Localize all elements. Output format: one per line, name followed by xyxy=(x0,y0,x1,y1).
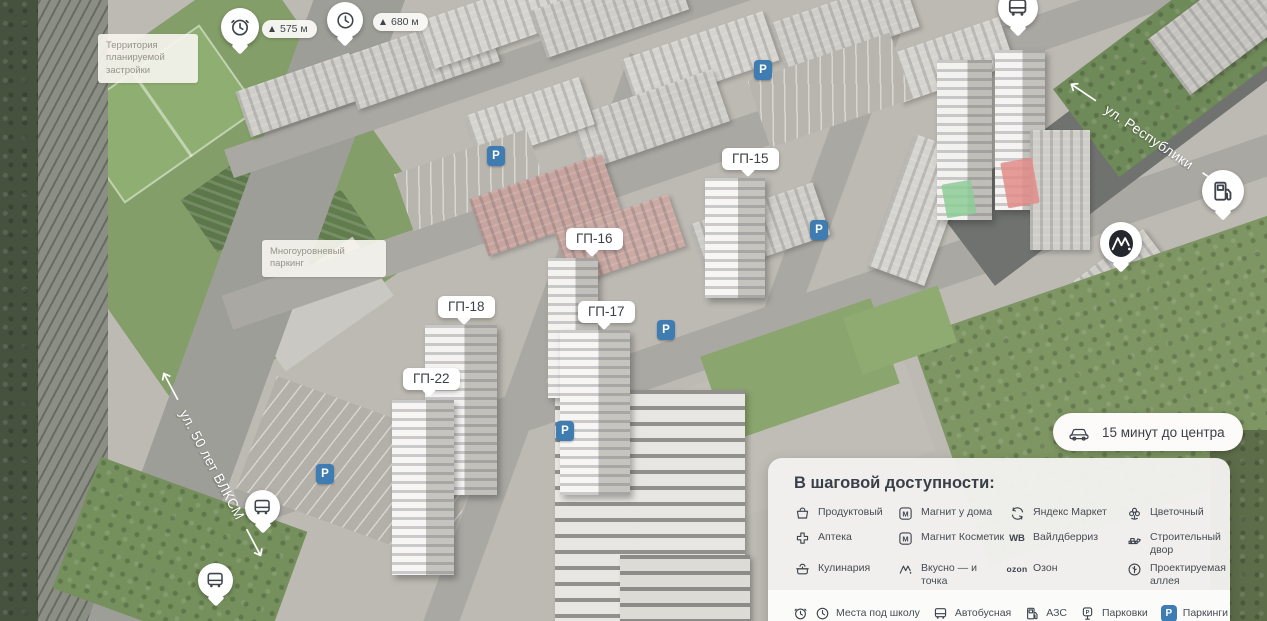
building-label[interactable]: ГП-16 xyxy=(566,228,623,250)
bus-icon xyxy=(205,570,225,590)
bus-icon xyxy=(933,605,949,621)
bus-icon xyxy=(1006,0,1029,20)
amenity-label: Вайлдберриз xyxy=(1033,529,1098,544)
parking-mark[interactable]: P xyxy=(556,421,574,441)
bus-stop-pin[interactable] xyxy=(198,563,233,598)
alley-icon xyxy=(1126,561,1142,577)
amenity-item: Строительный двор xyxy=(1126,529,1230,556)
drive-time-badge: 15 минут до центра xyxy=(1053,413,1243,451)
flower-icon xyxy=(1126,505,1142,521)
map-decor-block xyxy=(1030,130,1090,250)
amenity-label: Проектируемая аллея xyxy=(1150,560,1226,587)
yandex-market-icon xyxy=(1009,505,1025,521)
walk-direction-icon xyxy=(269,26,275,32)
amenity-label: Озон xyxy=(1033,560,1058,575)
amenity-item: Проектируемая аллея xyxy=(1126,560,1230,587)
basket-icon xyxy=(794,505,810,521)
distance-value: 680 м xyxy=(391,16,419,28)
pharmacy-cross-icon xyxy=(794,530,810,546)
svg-text:М: М xyxy=(902,534,908,543)
parking-mark[interactable]: P xyxy=(754,60,772,80)
parking-mark[interactable]: P xyxy=(810,220,828,240)
map-decor-block xyxy=(560,330,630,495)
amenity-label: Строительный двор xyxy=(1150,529,1226,556)
building-label[interactable]: ГП-15 xyxy=(722,148,779,170)
footer-item: Автобусная xyxy=(933,605,1011,621)
footer-item: АЗС xyxy=(1024,605,1067,621)
panel-title: В шаговой доступности: xyxy=(794,474,1230,493)
distance-value: 575 м xyxy=(280,23,308,35)
vkusno-logo-icon xyxy=(1109,231,1133,255)
amenity-item: ozonОзон xyxy=(1009,560,1126,587)
parking-blue-icon: P xyxy=(1161,605,1177,621)
masterplan-map-view[interactable]: Территория планируемой застройки Многоур… xyxy=(0,0,1267,621)
map-decor-block xyxy=(392,400,454,575)
fuel-icon xyxy=(1024,605,1040,621)
amenity-label: Магнит у дома xyxy=(921,504,992,519)
amenity-item: Яндекс Маркет xyxy=(1009,504,1126,525)
vkusno-icon xyxy=(897,561,913,577)
school-pin[interactable] xyxy=(221,8,259,46)
map-decor-block xyxy=(705,178,765,298)
amenity-item: Продуктовый xyxy=(794,504,897,525)
parking-mark[interactable]: P xyxy=(487,146,505,166)
building-label[interactable]: ГП-22 xyxy=(403,368,460,390)
school-clock-icon xyxy=(229,16,251,38)
bus-stop-pin[interactable] xyxy=(245,490,280,525)
area-label-planned-development: Территория планируемой застройки xyxy=(98,34,198,83)
amenity-label: Магнит Косметик xyxy=(921,529,1004,544)
footer-item: Места под школу xyxy=(792,605,920,621)
area-label-multilevel-parking: Многоуровневый паркинг xyxy=(262,240,386,277)
footer-item: PПаркинги xyxy=(1161,605,1228,621)
parking-sign-icon: P xyxy=(1080,605,1096,621)
footer-label: Парковки xyxy=(1102,607,1148,619)
map-decor-block xyxy=(620,555,750,621)
building-label[interactable]: ГП-17 xyxy=(578,301,635,323)
walk-direction-icon xyxy=(380,19,386,25)
amenity-label: Кулинария xyxy=(818,560,870,575)
bus-icon xyxy=(252,497,272,517)
amenity-item: Цветочный xyxy=(1126,504,1230,525)
footer-label: Паркинги xyxy=(1183,607,1228,619)
school-pin[interactable] xyxy=(327,2,363,38)
amenity-item: ММагнит у дома xyxy=(897,504,1009,525)
magnit-icon: М xyxy=(897,505,913,521)
amenity-label: Вкусно — и точка xyxy=(921,560,1005,587)
distance-badge: 680 м xyxy=(373,13,428,31)
footer-label: АЗС xyxy=(1046,607,1067,619)
footer-label: Места под школу xyxy=(836,607,920,619)
amenity-item: Вкусно — и точка xyxy=(897,560,1009,587)
amenity-item: ММагнит Косметик xyxy=(897,529,1009,556)
footer-item: PПарковки xyxy=(1080,605,1148,621)
clock-icon xyxy=(335,10,356,31)
drive-time-text: 15 минут до центра xyxy=(1102,425,1225,440)
amenity-label: Яндекс Маркет xyxy=(1033,504,1107,519)
culinary-icon xyxy=(794,561,810,577)
building-highlight-green[interactable] xyxy=(941,180,976,219)
amenity-label: Аптека xyxy=(818,529,852,544)
amenity-label: Продуктовый xyxy=(818,504,883,519)
amenity-item: Аптека xyxy=(794,529,897,556)
parking-mark[interactable]: P xyxy=(657,320,675,340)
distance-badge: 575 м xyxy=(262,20,317,38)
panel-footer: Места под школуАвтобуснаяАЗСPПарковкиPПа… xyxy=(768,590,1230,621)
clock-icon xyxy=(814,605,830,621)
fuel-icon xyxy=(1211,179,1235,203)
gas-station-pin[interactable] xyxy=(1202,170,1244,212)
vkusno-i-tochka-pin[interactable] xyxy=(1100,222,1142,264)
parking-mark[interactable]: P xyxy=(316,464,334,484)
magnit-cosmetic-icon: М xyxy=(897,530,913,546)
car-icon xyxy=(1067,424,1091,441)
amenities-panel: В шаговой доступности: ПродуктовыйММагни… xyxy=(768,458,1230,621)
amenity-item: Кулинария xyxy=(794,560,897,587)
construction-icon xyxy=(1126,530,1142,546)
svg-text:P: P xyxy=(1086,609,1090,615)
ozon-icon: ozon xyxy=(1009,561,1025,577)
building-label[interactable]: ГП-18 xyxy=(438,296,495,318)
amenity-label: Цветочный xyxy=(1150,504,1204,519)
footer-label: Автобусная xyxy=(955,607,1011,619)
amenity-item: WBВайлдберриз xyxy=(1009,529,1126,556)
school-clock-icon xyxy=(792,605,808,621)
svg-text:М: М xyxy=(902,509,908,518)
map-decor-block xyxy=(0,0,38,621)
wb-icon: WB xyxy=(1009,530,1025,546)
